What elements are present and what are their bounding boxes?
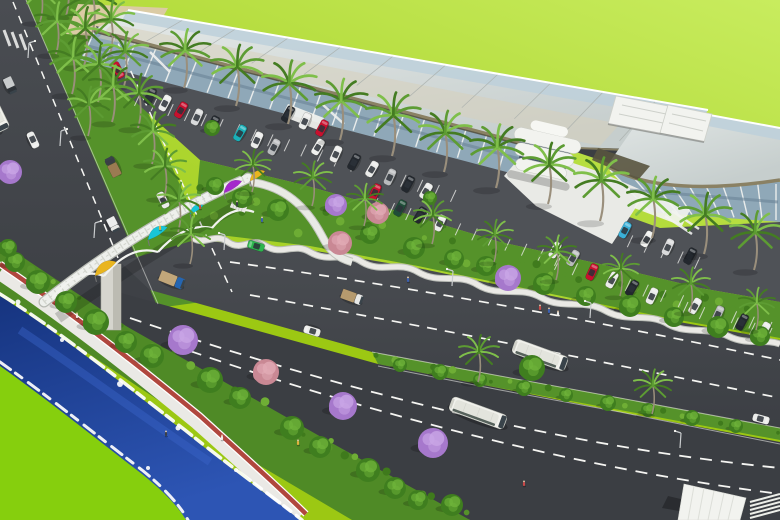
aerial-render-bus-terminal: [0, 0, 780, 520]
rendered-scene: [0, 0, 780, 520]
